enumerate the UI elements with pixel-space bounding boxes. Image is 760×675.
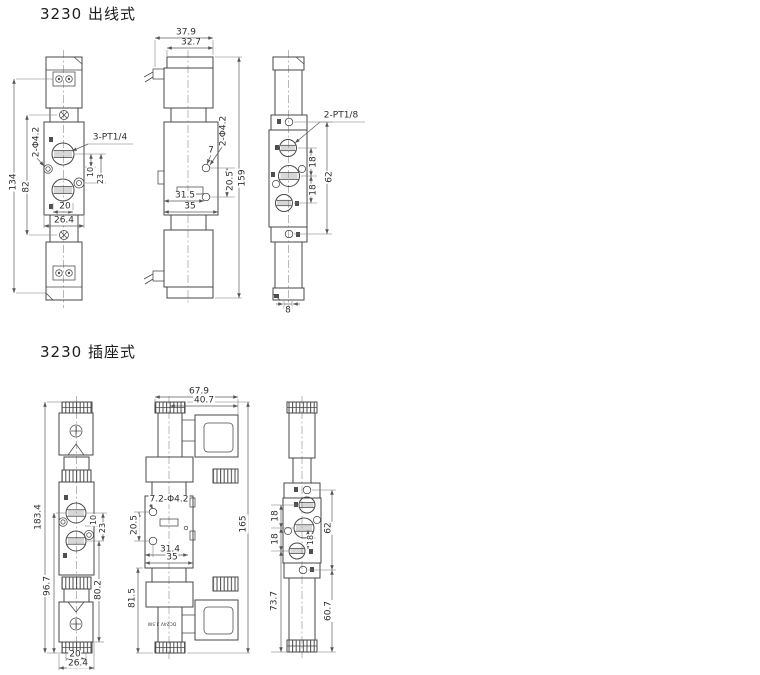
technical-drawing-canvas <box>0 0 760 675</box>
callout-s1-front-hole: 2-Φ4.2 <box>32 126 41 158</box>
dim-s1-82: 82 <box>22 180 31 193</box>
dim-s2-40-7: 40.7 <box>193 396 215 405</box>
dim-s1-26-4: 26.4 <box>53 216 75 225</box>
dim-s2-96-7: 96.7 <box>43 575 52 597</box>
dim-s2-26-4: 26.4 <box>67 659 89 668</box>
callout-s1-side-hole: 2-Φ4.2 <box>219 115 228 147</box>
coil-rating-label: DC24V 3.5W <box>147 620 177 625</box>
dim-s1-8: 8 <box>284 306 292 315</box>
dim-s2-35: 35 <box>165 553 178 562</box>
dim-s1-20: 20 <box>58 202 71 211</box>
dim-s2-23: 23 <box>99 522 107 534</box>
dim-s1-62: 62 <box>325 170 334 183</box>
dim-s1-134: 134 <box>9 172 18 191</box>
dim-s1-35: 35 <box>183 202 196 211</box>
dim-s1-31-5: 31.5 <box>174 191 196 200</box>
callout-s2-side-hole: 7.2-Φ4.2 <box>149 495 190 504</box>
dim-s1-32-7: 32.7 <box>180 38 202 47</box>
dim-s1-18-top: 18 <box>309 155 318 168</box>
section1-title: 3230 出线式 <box>40 3 136 24</box>
dim-s1-20-5: 20.5 <box>226 170 235 192</box>
s1-back-view <box>269 50 365 312</box>
dim-s2-73-7: 73.7 <box>270 590 279 612</box>
section2-title: 3230 插座式 <box>40 341 136 362</box>
dim-s2-165: 165 <box>239 514 248 533</box>
dim-s1-18-bottom: 18 <box>309 183 318 196</box>
callout-s1-front-port: 3-PT1/4 <box>92 133 128 142</box>
dim-s1-7: 7 <box>207 146 215 155</box>
dim-s2-81-5: 81.5 <box>128 587 137 609</box>
dim-s2-20-5: 20.5 <box>130 514 139 536</box>
dim-s2-62: 62 <box>324 521 333 534</box>
dim-s1-23: 23 <box>97 173 105 185</box>
dim-s2-183-4: 183.4 <box>34 503 43 531</box>
drawing-sheet: 3230 出线式 3230 插座式 134 82 2-Φ4.2 3-PT1/4 … <box>0 0 760 675</box>
dim-s1-159: 159 <box>238 168 247 187</box>
s1-front-view <box>14 50 133 308</box>
dim-s2-80-2: 80.2 <box>94 579 103 601</box>
dim-s2-60-7: 60.7 <box>324 600 333 622</box>
dim-s2-18-top: 18 <box>271 509 280 522</box>
dim-s1-10: 10 <box>87 166 95 178</box>
callout-s1-back-port: 2-PT1/8 <box>323 111 359 120</box>
dim-s2-18-inner: 18 <box>307 534 315 546</box>
dim-s2-18-mid: 18 <box>271 532 280 545</box>
